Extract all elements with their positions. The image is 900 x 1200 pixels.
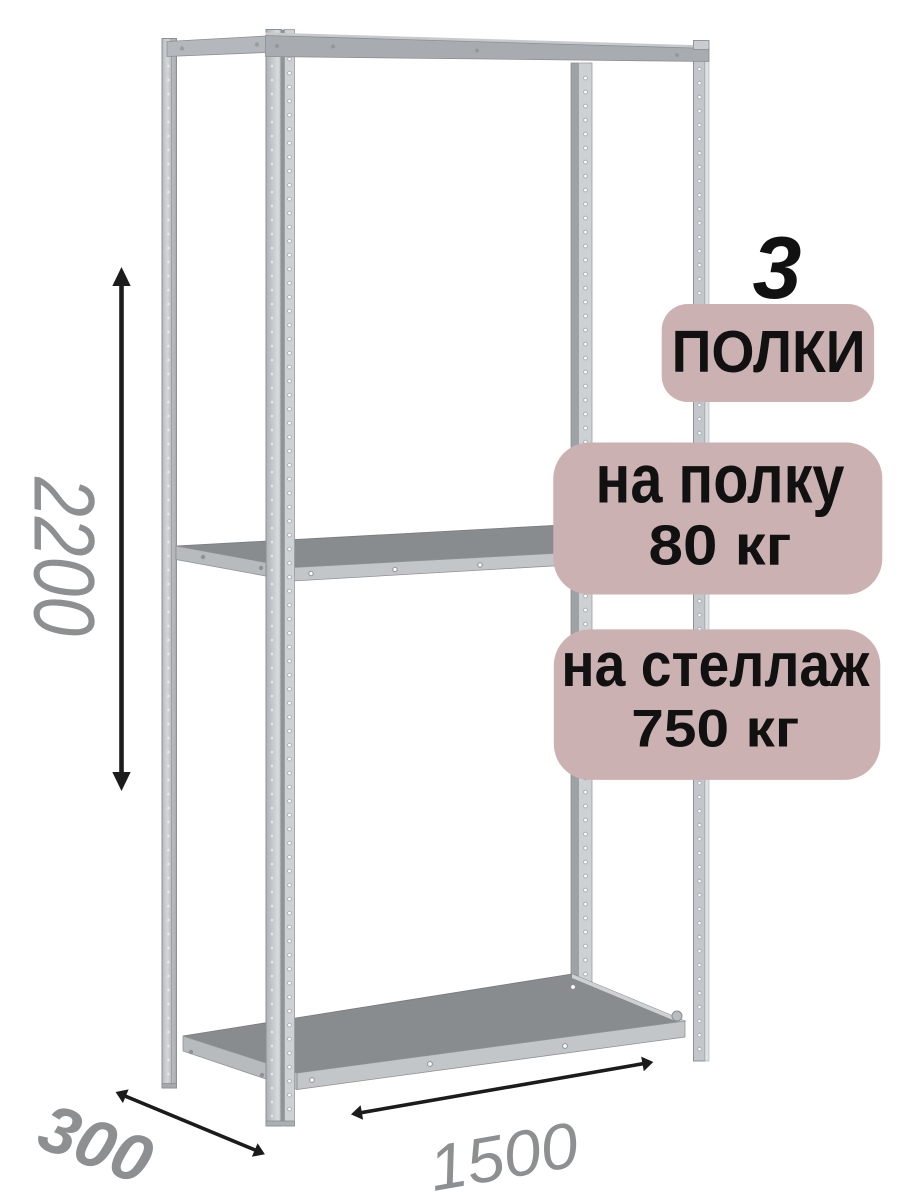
svg-text:2200: 2200 [16, 476, 112, 636]
svg-text:на полку: на полку [596, 440, 845, 517]
svg-text:ПОЛКИ: ПОЛКИ [672, 319, 866, 385]
svg-text:на стеллаж: на стеллаж [561, 631, 870, 700]
svg-text:3: 3 [753, 218, 802, 317]
svg-text:750 кг: 750 кг [631, 700, 799, 759]
svg-text:80 кг: 80 кг [649, 514, 792, 578]
